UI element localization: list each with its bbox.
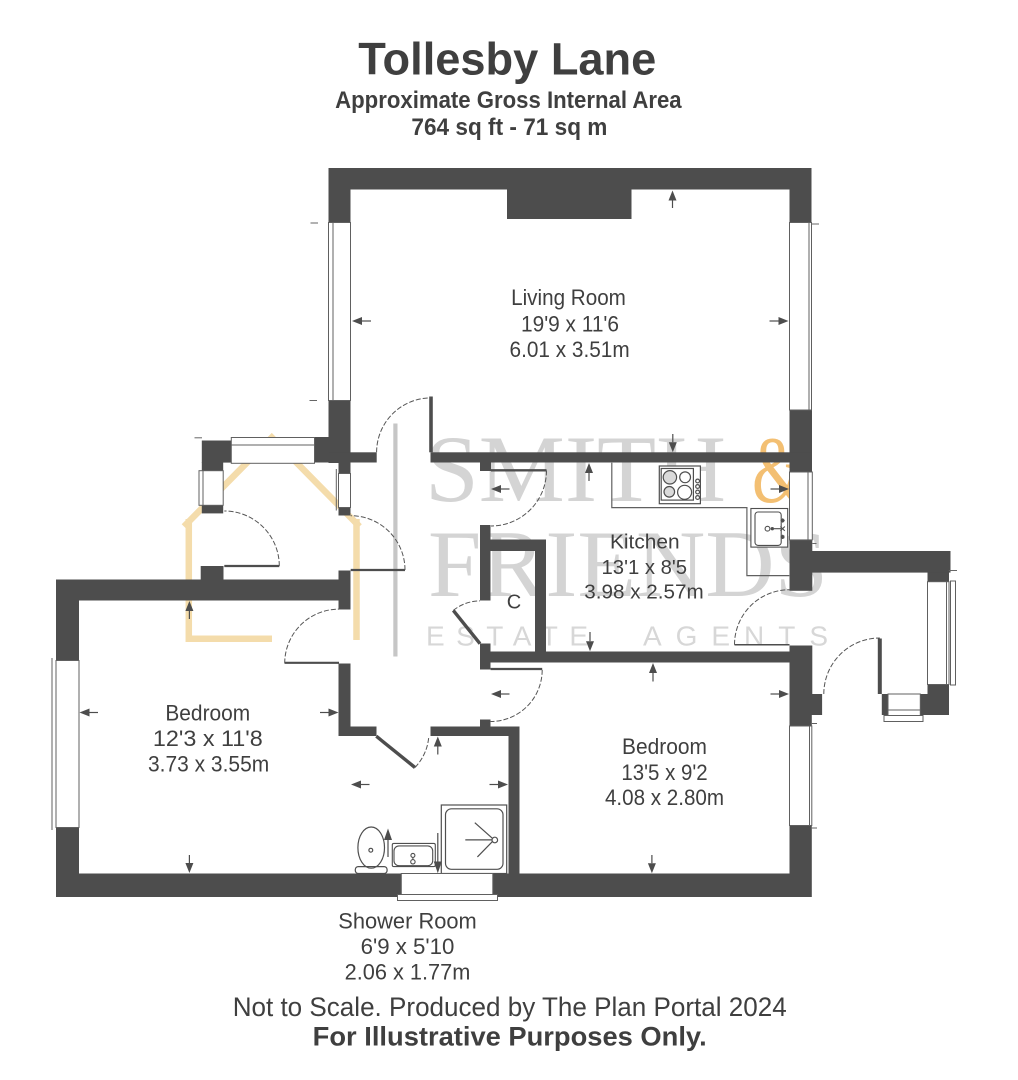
svg-text:Not to Scale. Produced by The: Not to Scale. Produced by The Plan Porta… <box>233 992 787 1022</box>
svg-text:19'9 x 11'6: 19'9 x 11'6 <box>521 311 619 336</box>
svg-text:2.06 x 1.77m: 2.06 x 1.77m <box>345 959 471 984</box>
svg-text:3.98 x 2.57m: 3.98 x 2.57m <box>584 581 703 603</box>
svg-text:Shower Room: Shower Room <box>338 908 477 933</box>
svg-text:Bedroom: Bedroom <box>165 701 250 726</box>
svg-text:13'5 x 9'2: 13'5 x 9'2 <box>621 760 707 785</box>
svg-text:12'3 x 11'8: 12'3 x 11'8 <box>153 726 263 751</box>
svg-text:Tollesby Lane: Tollesby Lane <box>358 34 656 85</box>
svg-text:Living Room: Living Room <box>511 285 626 310</box>
svg-text:C: C <box>507 592 521 614</box>
svg-text:Bedroom: Bedroom <box>622 734 707 759</box>
svg-text:For Illustrative Purposes Only: For Illustrative Purposes Only. <box>313 1022 707 1052</box>
svg-text:Kitchen: Kitchen <box>610 532 680 554</box>
svg-text:3.73 x 3.55m: 3.73 x 3.55m <box>148 752 269 777</box>
svg-text:764 sq ft - 71 sq m: 764 sq ft - 71 sq m <box>411 114 607 141</box>
svg-text:13'1 x 8'5: 13'1 x 8'5 <box>602 557 688 579</box>
svg-text:6.01 x 3.51m: 6.01 x 3.51m <box>510 337 630 362</box>
svg-text:4.08 x 2.80m: 4.08 x 2.80m <box>605 785 724 810</box>
svg-text:6'9 x 5'10: 6'9 x 5'10 <box>361 934 455 959</box>
svg-text:Approximate Gross Internal Are: Approximate Gross Internal Area <box>335 87 682 114</box>
